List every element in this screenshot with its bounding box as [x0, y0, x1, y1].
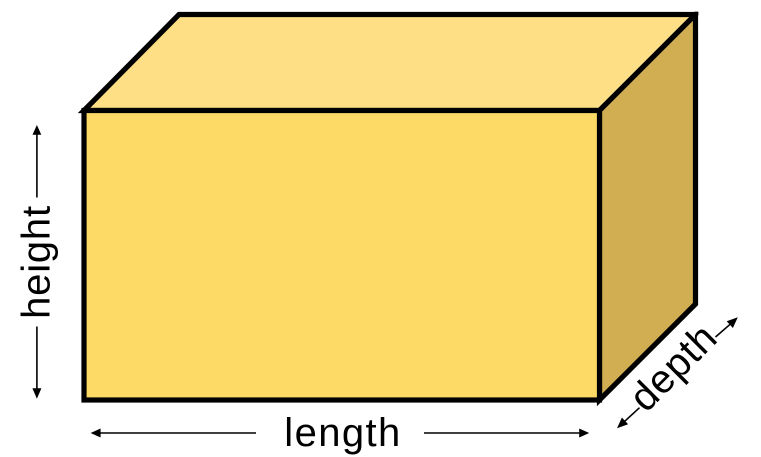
svg-text:height: height: [15, 205, 59, 319]
svg-text:length: length: [284, 411, 401, 455]
